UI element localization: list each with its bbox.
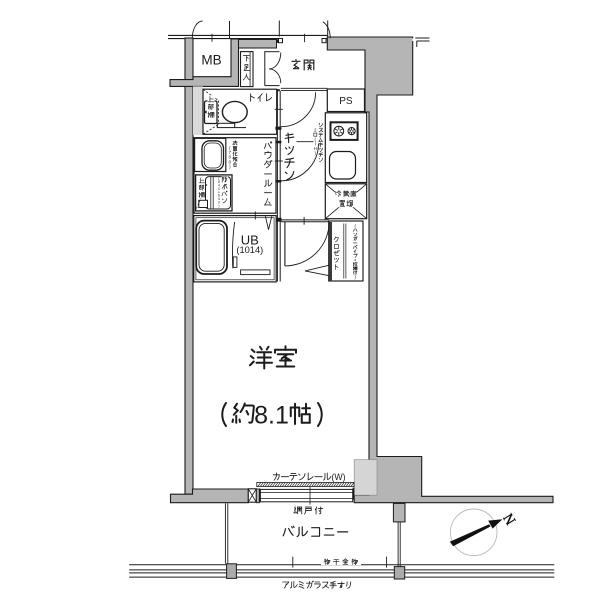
svg-text:MB: MB: [201, 53, 221, 68]
svg-text:2: 2: [314, 128, 317, 133]
svg-text:PS: PS: [339, 96, 353, 107]
svg-text:8.1: 8.1: [254, 401, 289, 429]
svg-text:(W): (W): [331, 472, 345, 482]
svg-text:): ): [218, 204, 219, 208]
svg-text:(1014): (1014): [236, 245, 263, 255]
